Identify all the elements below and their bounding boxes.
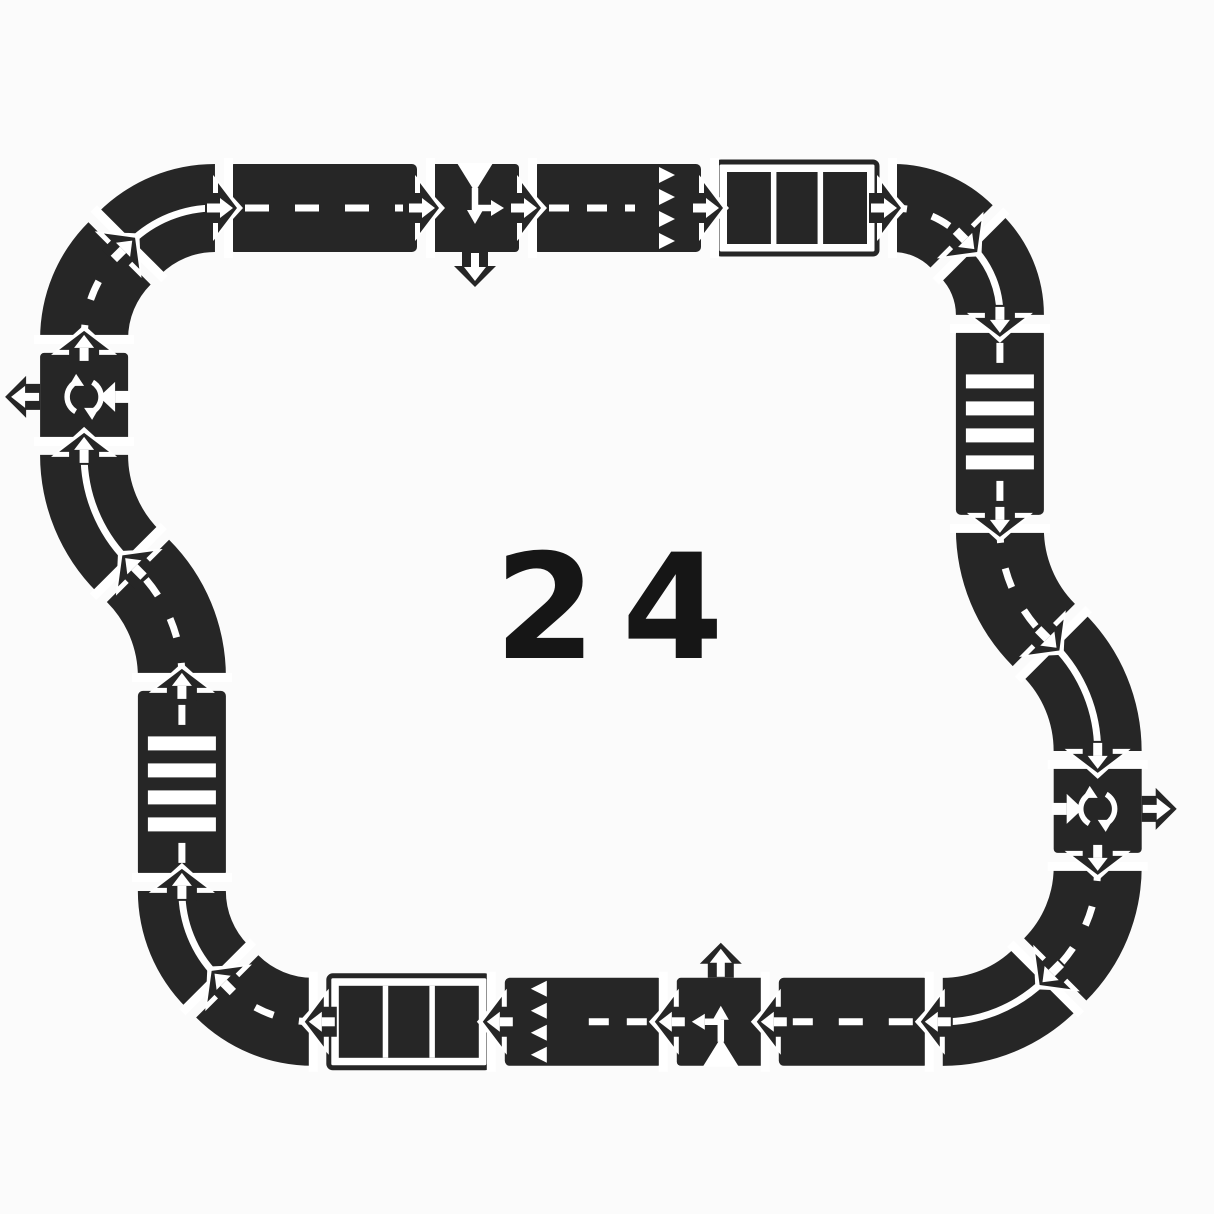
zebra-stripe-icon — [966, 374, 1034, 388]
socket-notch-icon — [1052, 803, 1067, 815]
zebra-stripe-icon — [148, 736, 216, 750]
piece-tee-junction-bottom — [677, 943, 765, 1067]
piece-straight-top-give-way — [533, 164, 701, 252]
zebra-stripe-icon — [966, 401, 1034, 415]
piece-zebra-crossing-left — [138, 691, 226, 877]
socket-notch-icon — [115, 391, 130, 403]
piece-roundabout-right — [1052, 765, 1177, 853]
piece-straight-top — [229, 164, 417, 252]
zebra-stripe-icon — [966, 428, 1034, 442]
piece-count-label: 24 — [494, 523, 749, 693]
piece-straight-bottom-give-way — [505, 978, 663, 1066]
zebra-stripe-icon — [148, 817, 216, 831]
piece-straight-bottom — [779, 978, 929, 1066]
piece-zebra-crossing-right — [956, 329, 1044, 515]
zebra-stripe-icon — [966, 455, 1034, 469]
zebra-stripe-icon — [148, 763, 216, 777]
piece-parking-bottom — [329, 976, 489, 1068]
piece-parking-top — [717, 162, 877, 254]
road-track-product-image: 24 — [0, 0, 1214, 1214]
zebra-stripe-icon — [148, 790, 216, 804]
piece-tee-junction-top — [431, 163, 519, 287]
road-track-canvas: 24 — [0, 0, 1214, 1214]
piece-roundabout-left — [5, 353, 130, 441]
